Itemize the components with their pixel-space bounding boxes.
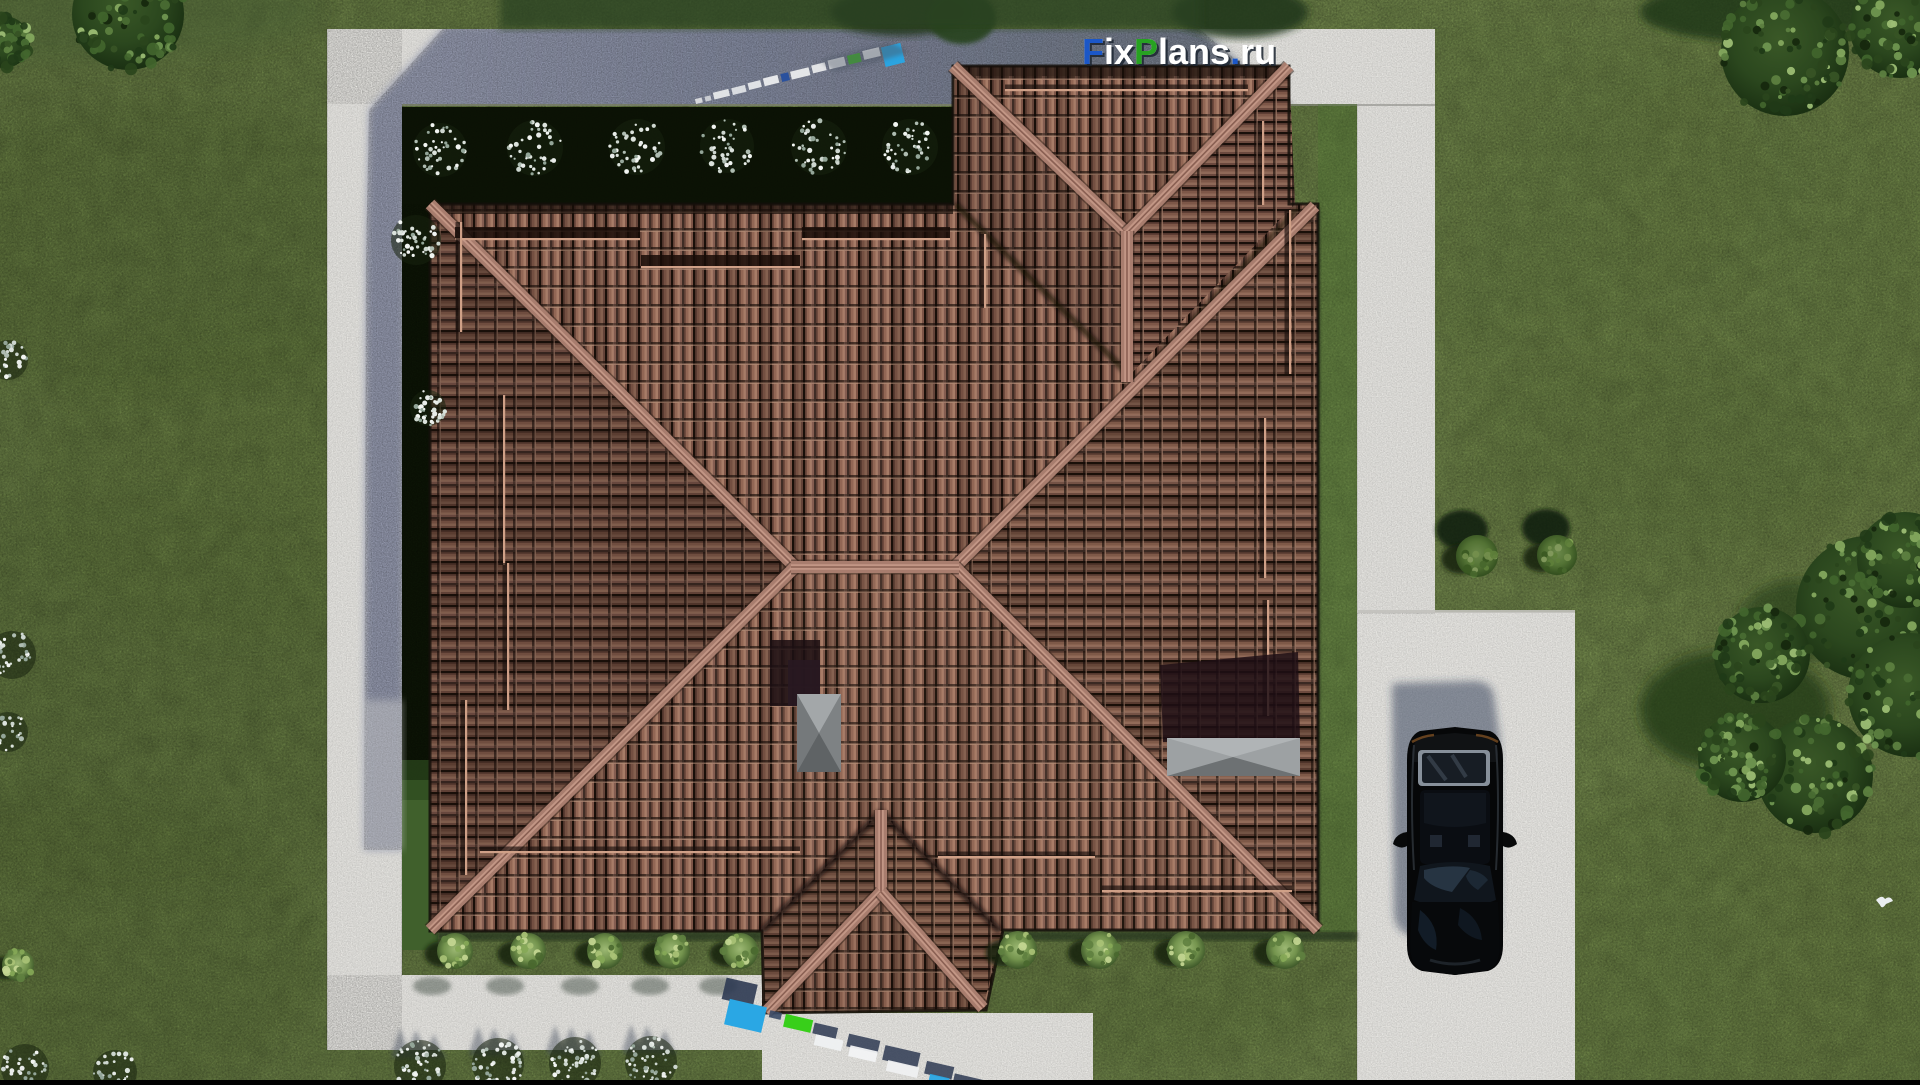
svg-text:FixPlans.: FixPlans. <box>1082 31 1240 72</box>
